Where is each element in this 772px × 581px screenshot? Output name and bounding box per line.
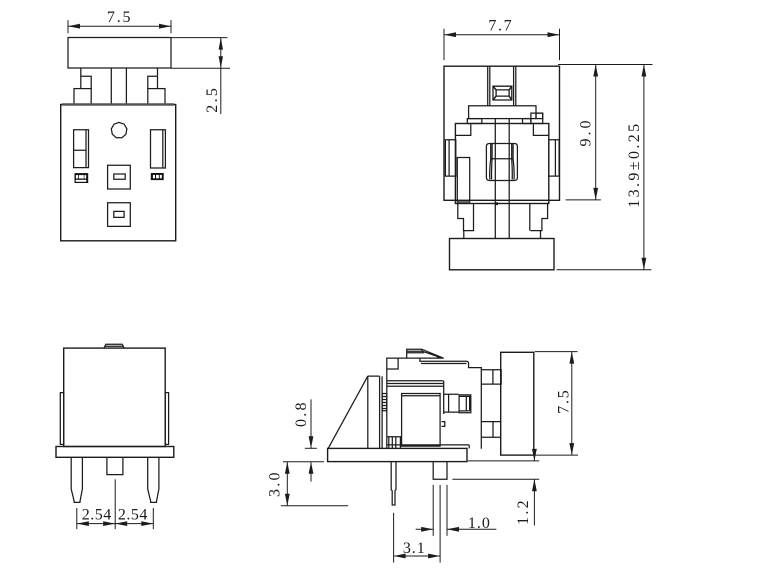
svg-text:2.54: 2.54: [118, 507, 148, 524]
svg-text:3.1: 3.1: [403, 540, 425, 557]
svg-text:2.5: 2.5: [204, 88, 221, 113]
svg-text:1.0: 1.0: [468, 515, 490, 532]
svg-text:7.5: 7.5: [107, 9, 131, 26]
svg-text:7.7: 7.7: [488, 17, 511, 34]
svg-text:7.5: 7.5: [556, 390, 573, 414]
svg-text:3.0: 3.0: [267, 472, 284, 497]
svg-text:13.9±0.25: 13.9±0.25: [626, 124, 643, 208]
svg-text:0.8: 0.8: [293, 403, 310, 428]
svg-text:1.2: 1.2: [515, 500, 532, 525]
svg-text:2.54: 2.54: [82, 507, 112, 524]
svg-text:9.0: 9.0: [578, 121, 595, 147]
